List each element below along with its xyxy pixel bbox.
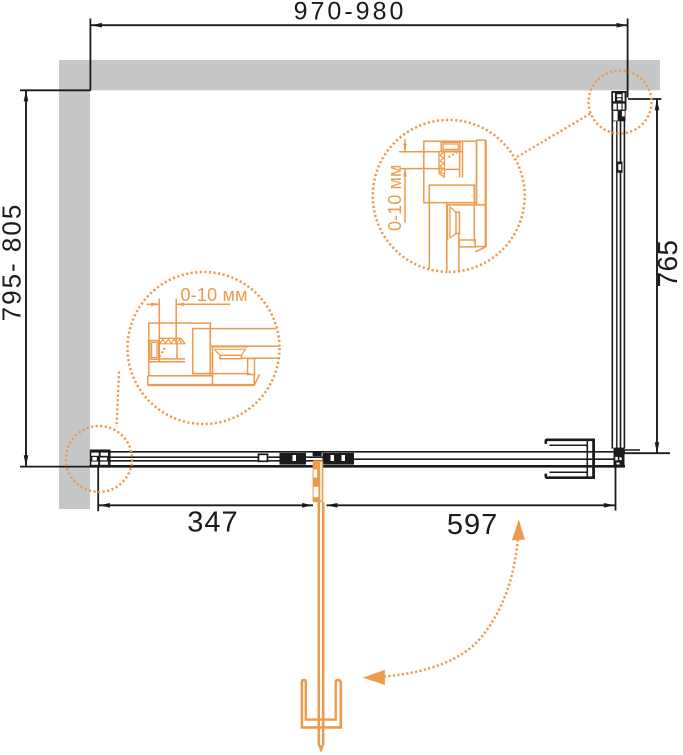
svg-text:347: 347 bbox=[187, 507, 238, 539]
svg-text:765: 765 bbox=[652, 240, 683, 288]
svg-text:0-10 мм: 0-10 мм bbox=[181, 285, 248, 305]
svg-text:970-980: 970-980 bbox=[294, 0, 407, 26]
svg-text:0-10 мм: 0-10 мм bbox=[385, 165, 405, 231]
svg-text:795- 805: 795- 805 bbox=[0, 203, 26, 322]
svg-text:597: 597 bbox=[447, 509, 498, 541]
